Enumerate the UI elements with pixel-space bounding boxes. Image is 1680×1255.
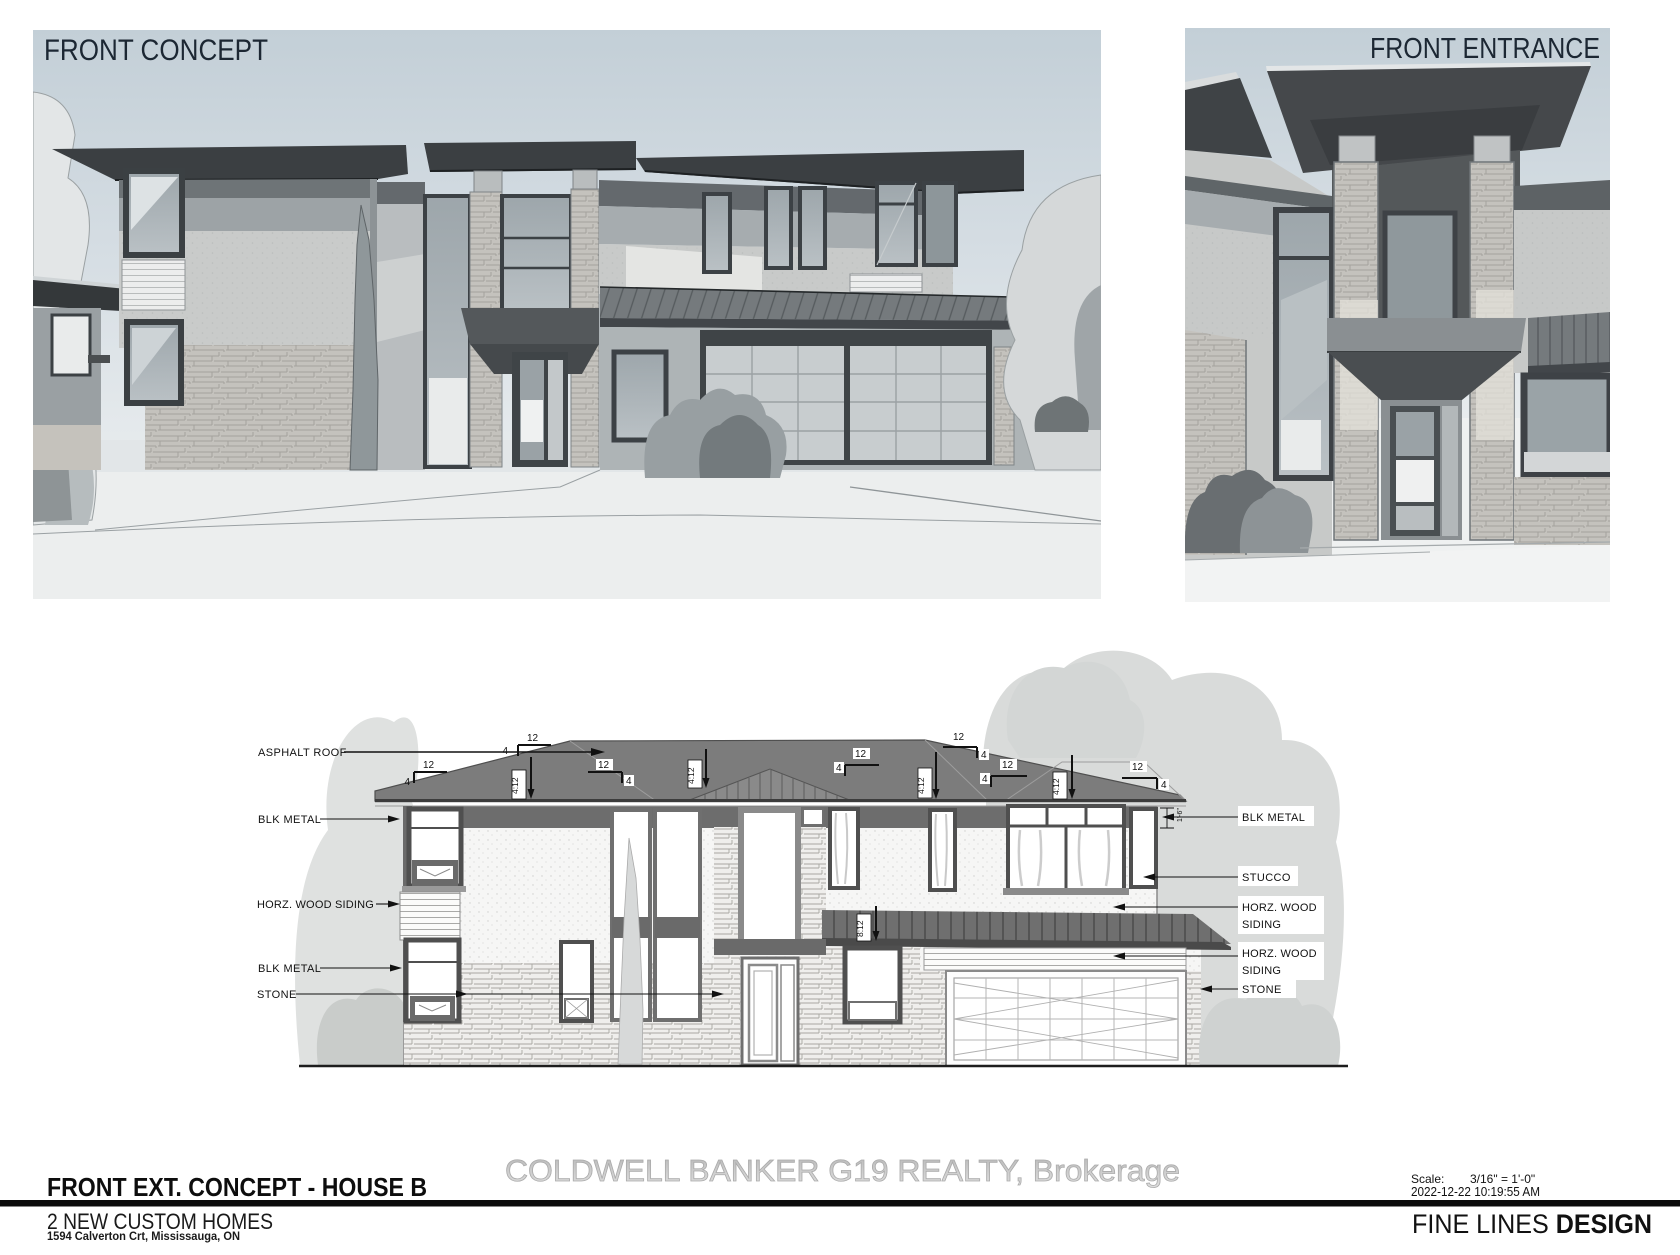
- svg-text:STUCCO: STUCCO: [1242, 872, 1291, 884]
- svg-text:4: 4: [626, 776, 632, 787]
- svg-text:1'-6": 1'-6": [1177, 808, 1184, 822]
- svg-text:HORZ. WOOD: HORZ. WOOD: [1242, 902, 1317, 914]
- svg-text:STONE: STONE: [257, 989, 297, 1001]
- svg-text:4: 4: [981, 750, 987, 761]
- svg-text:12: 12: [598, 760, 610, 771]
- svg-text:FINE LINES DESIGN: FINE LINES DESIGN: [1412, 1209, 1652, 1239]
- svg-text:4: 4: [836, 763, 842, 774]
- svg-text:4: 4: [1161, 780, 1167, 791]
- svg-text:4:12: 4:12: [510, 777, 520, 794]
- svg-text:1594 Calverton Crt, Mississaug: 1594 Calverton Crt, Mississauga, ON: [47, 1231, 240, 1243]
- svg-text:HORZ. WOOD: HORZ. WOOD: [1242, 948, 1317, 960]
- svg-text:Scale:: Scale:: [1411, 1172, 1444, 1186]
- svg-text:12: 12: [423, 760, 435, 771]
- svg-text:12: 12: [527, 733, 539, 744]
- svg-text:12: 12: [953, 732, 965, 743]
- svg-text:12: 12: [1002, 760, 1014, 771]
- svg-text:FRONT ENTRANCE: FRONT ENTRANCE: [1370, 33, 1600, 65]
- svg-text:FRONT EXT. CONCEPT - HOUSE B: FRONT EXT. CONCEPT - HOUSE B: [47, 1172, 427, 1202]
- svg-text:12: 12: [1132, 762, 1144, 773]
- svg-text:BLK METAL: BLK METAL: [258, 814, 321, 826]
- svg-text:12: 12: [855, 749, 867, 760]
- svg-text:8:12: 8:12: [855, 920, 865, 937]
- svg-text:ASPHALT ROOF: ASPHALT ROOF: [258, 747, 347, 759]
- svg-text:COLDWELL BANKER G19 REALTY, Br: COLDWELL BANKER G19 REALTY, Brokerage: [505, 1153, 1180, 1188]
- svg-text:4:12: 4:12: [686, 767, 696, 784]
- svg-text:SIDING: SIDING: [1242, 965, 1281, 977]
- svg-text:BLK METAL: BLK METAL: [258, 963, 321, 975]
- svg-text:4: 4: [502, 746, 508, 757]
- svg-text:2022-12-22 10:19:55 AM: 2022-12-22 10:19:55 AM: [1411, 1185, 1540, 1199]
- svg-text:3/16" = 1'-0": 3/16" = 1'-0": [1470, 1172, 1535, 1186]
- svg-text:4: 4: [982, 774, 988, 785]
- svg-text:4:12: 4:12: [1051, 778, 1061, 795]
- svg-text:4: 4: [404, 777, 410, 788]
- svg-text:BLK METAL: BLK METAL: [1242, 812, 1305, 824]
- svg-text:HORZ. WOOD SIDING: HORZ. WOOD SIDING: [257, 899, 374, 911]
- svg-text:FRONT CONCEPT: FRONT CONCEPT: [44, 34, 268, 67]
- svg-text:STONE: STONE: [1242, 984, 1282, 996]
- svg-text:4:12: 4:12: [916, 777, 926, 794]
- svg-text:SIDING: SIDING: [1242, 919, 1281, 931]
